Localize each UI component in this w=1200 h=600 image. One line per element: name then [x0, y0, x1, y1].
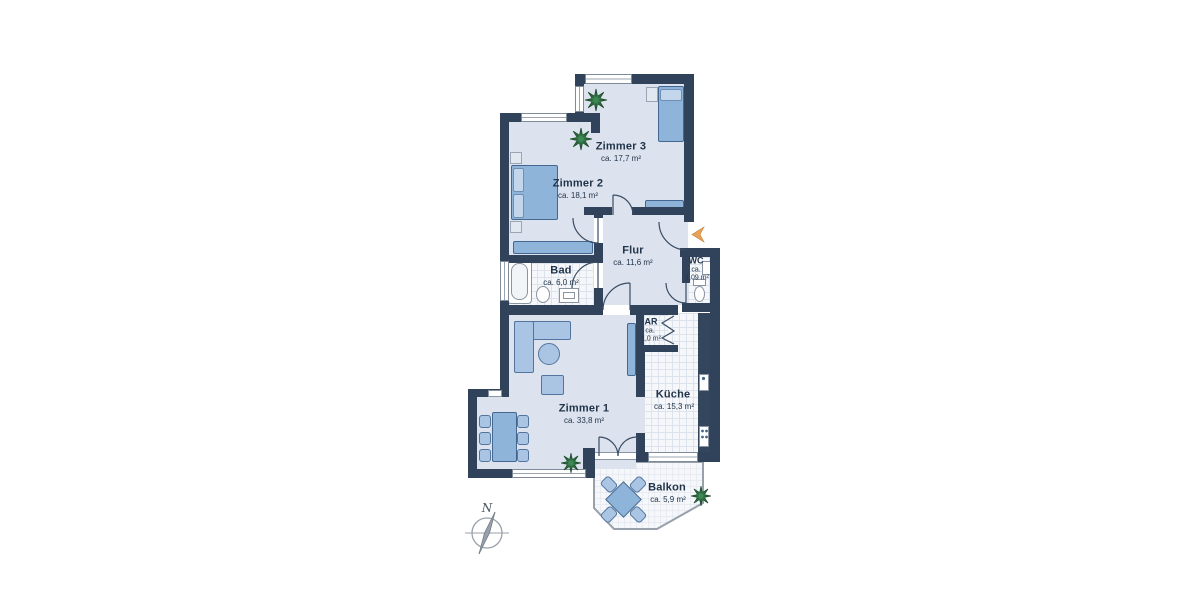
balcony-outline — [594, 462, 703, 529]
label-zimmer1: Zimmer 1 — [559, 404, 610, 415]
window — [521, 113, 567, 122]
area-zimmer2: ca. 18,1 m² — [558, 192, 598, 200]
bad-sink — [536, 286, 550, 303]
toilet-bowl — [694, 286, 705, 302]
label-kueche: Küche — [656, 390, 691, 401]
nightstand-zimmer3 — [646, 87, 658, 102]
balcony-table-set — [600, 476, 647, 524]
area-balkon: ca. 5,9 m² — [650, 496, 686, 504]
dining-chair — [479, 449, 491, 462]
label-zimmer2: Zimmer 2 — [553, 179, 604, 190]
bathtub-basin — [511, 263, 528, 300]
label-wc: WC — [689, 257, 704, 266]
label-zimmer3: Zimmer 3 — [596, 142, 647, 153]
wall — [594, 243, 603, 262]
dining-chair — [517, 432, 529, 445]
washing-machine-panel — [563, 292, 575, 299]
dining-chair — [479, 432, 491, 445]
pillow-zimmer2-top — [513, 168, 524, 192]
pillow-zimmer3 — [660, 89, 682, 101]
wall — [594, 288, 603, 305]
balcony-door-threshold — [595, 452, 636, 460]
nightstand-zimmer2-top — [510, 152, 522, 164]
wall — [500, 255, 603, 263]
wall — [636, 433, 645, 452]
dining-chair — [517, 449, 529, 462]
armchair — [541, 375, 564, 395]
radiator — [488, 390, 502, 397]
compass-icon: N — [465, 501, 509, 554]
dining-chair — [517, 415, 529, 428]
wall — [684, 74, 694, 222]
area-wc-value: 1,09 m² — [685, 275, 709, 282]
wall — [500, 305, 603, 315]
dining-table — [492, 412, 517, 462]
plant-icon — [691, 486, 711, 506]
wall — [636, 352, 645, 397]
window — [512, 469, 586, 478]
area-zimmer1: ca. 33,8 m² — [564, 417, 604, 425]
sofa-side — [514, 321, 534, 373]
window — [648, 452, 698, 462]
wall — [591, 113, 600, 133]
wall — [682, 303, 720, 312]
kitchen-sink — [699, 374, 709, 391]
coffee-table — [538, 343, 560, 365]
area-ar-prefix: ca. — [645, 328, 654, 335]
wall — [710, 248, 720, 462]
nightstand-zimmer2-bottom — [510, 221, 522, 233]
area-zimmer3: ca. 17,7 m² — [601, 155, 641, 163]
label-balkon: Balkon — [648, 483, 686, 494]
stove — [699, 426, 709, 447]
sideboard-zimmer2 — [513, 241, 593, 254]
compass-north-label: N — [481, 501, 493, 515]
wall — [632, 207, 694, 215]
area-flur: ca. 11,6 m² — [613, 259, 652, 267]
tv-board — [627, 323, 636, 376]
label-flur: Flur — [622, 246, 644, 257]
area-kueche: ca. 15,3 m² — [654, 403, 694, 411]
window — [585, 74, 632, 84]
dining-chair — [479, 415, 491, 428]
window — [500, 261, 509, 301]
label-bad: Bad — [550, 266, 571, 277]
wall — [584, 207, 612, 215]
wall — [636, 345, 678, 352]
floorplan: Zimmer 3 ca. 17,7 m² Zimmer 2 ca. 18,1 m… — [0, 0, 1200, 600]
area-ar-value: 1,0 m² — [641, 336, 661, 343]
label-ar: AR — [645, 318, 658, 327]
area-wc-prefix: ca. — [691, 267, 700, 274]
area-bad: ca. 6,0 m² — [543, 279, 579, 287]
wall — [468, 389, 477, 478]
pillow-zimmer2-bottom — [513, 194, 524, 218]
entrance-arrow-icon — [692, 227, 704, 242]
window — [575, 86, 584, 112]
